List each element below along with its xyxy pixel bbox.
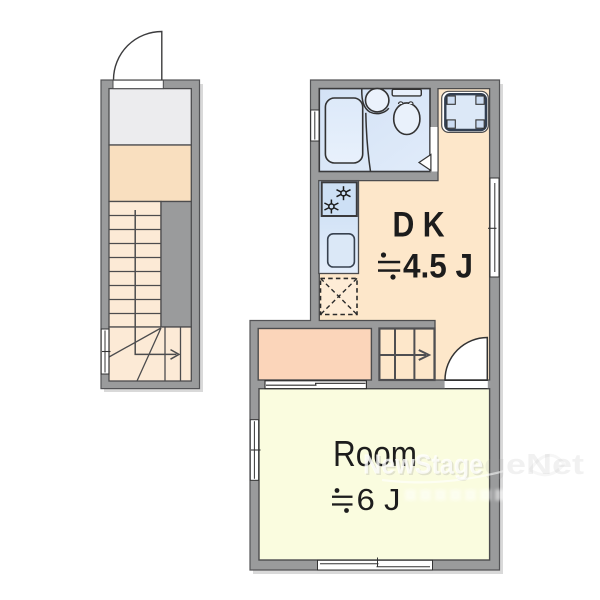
svg-text:D K: D K [393, 206, 445, 245]
svg-text:NewStage: NewStage [363, 449, 483, 480]
svg-text:6 J: 6 J [357, 482, 401, 517]
svg-text:4.5 J: 4.5 J [403, 248, 473, 286]
